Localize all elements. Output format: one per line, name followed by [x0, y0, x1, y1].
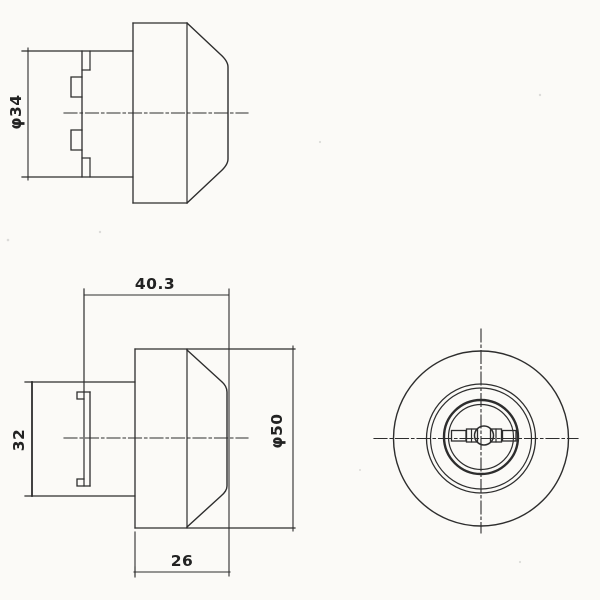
dimension-label-phi34: φ34: [7, 94, 25, 129]
scan-speckle: [539, 94, 541, 96]
scan-speckles: [7, 94, 542, 563]
front-side-view: 40.3 32 φ50 26: [10, 275, 295, 577]
scan-speckle: [7, 239, 10, 242]
dimension-label-26: 26: [171, 552, 194, 570]
clip-tab-lower: [71, 130, 82, 150]
top-side-view: φ34: [7, 23, 248, 203]
keyhole-left-wing: [452, 431, 467, 442]
scan-speckle: [519, 561, 521, 563]
dimension-label-32: 32: [10, 429, 28, 452]
scan-speckle: [99, 231, 101, 233]
face-view: [374, 329, 578, 533]
dimension-label-40-3: 40.3: [135, 275, 175, 293]
lock-cylinder-technical-drawing: φ34 40.3 32 φ50 26: [0, 0, 600, 600]
dimension-label-phi50: φ50: [268, 413, 286, 448]
keyhole: [452, 426, 517, 445]
clip-tab-upper: [71, 77, 82, 97]
drawing-sheet: φ34 40.3 32 φ50 26: [0, 0, 600, 600]
scan-speckle: [359, 469, 361, 471]
scan-speckle: [319, 141, 321, 143]
